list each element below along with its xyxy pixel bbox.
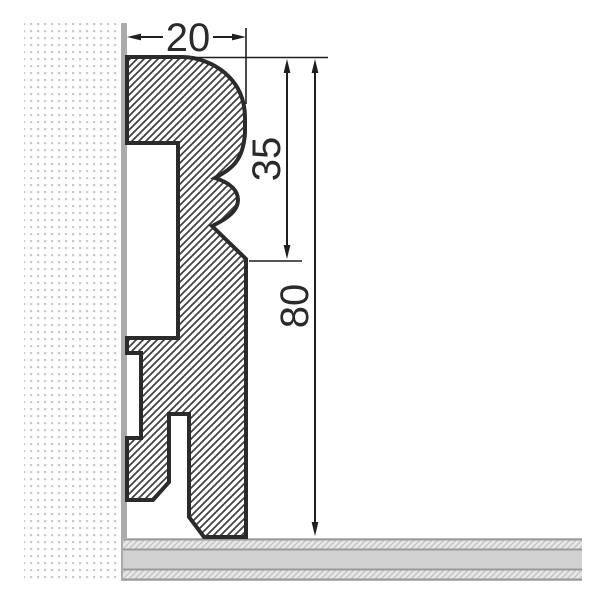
profile-cross-section-outline [127, 57, 246, 537]
floor-top-hatched-layer [123, 540, 582, 549]
dimension-upper-height: 35 [245, 59, 290, 259]
dimension-total-height: 80 [273, 59, 318, 536]
upper-height-dimension-label: 35 [245, 137, 289, 182]
arrowhead-up [312, 59, 319, 73]
arrowhead-down [284, 245, 291, 259]
floor-section [123, 538, 582, 581]
arrowhead-down [312, 522, 319, 536]
width-dimension-label: 20 [166, 16, 211, 60]
skirting-profile-drawing: 20 35 80 [0, 0, 604, 604]
arrowhead-left [127, 34, 141, 41]
wall-stipple-area [24, 23, 121, 581]
floor-bottom-hatched-layer [123, 571, 582, 580]
wall-section [24, 23, 127, 581]
arrowhead-right [232, 34, 246, 41]
arrowhead-up [284, 59, 291, 73]
skirting-profile [127, 57, 246, 537]
total-height-dimension-label: 80 [273, 284, 317, 329]
technical-drawing-canvas: 20 35 80 [0, 0, 604, 604]
